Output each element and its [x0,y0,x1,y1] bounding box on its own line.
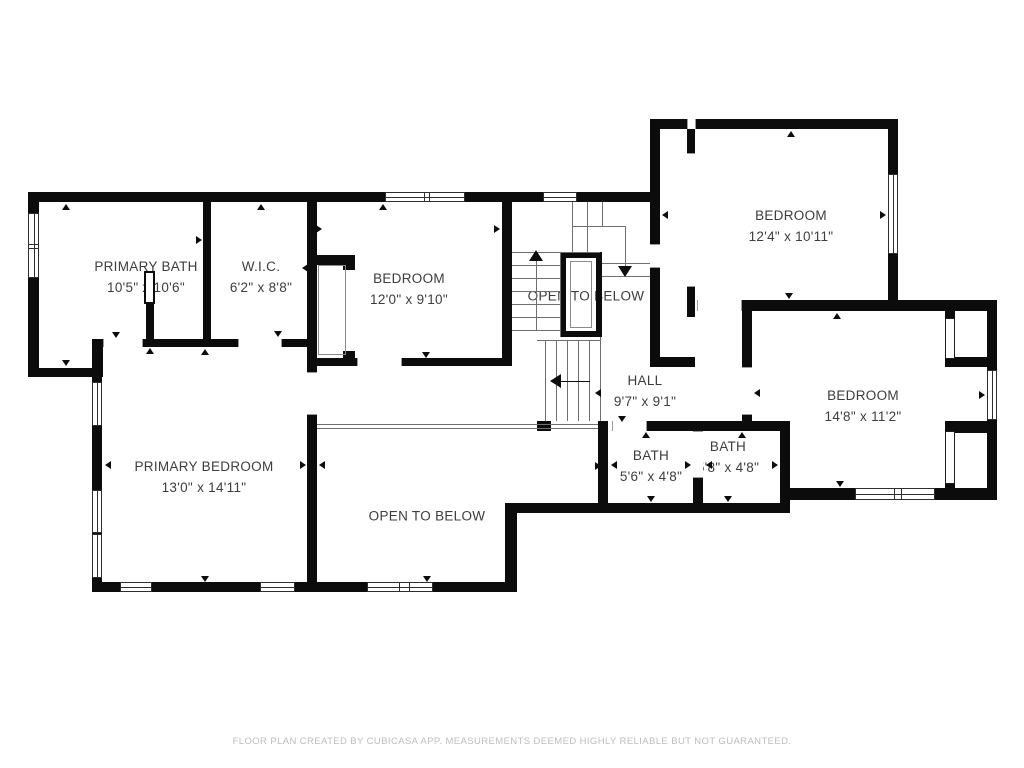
measurement-marker-icon [754,389,760,397]
room-name: BATH [620,445,682,466]
stair-tread-line [537,340,600,341]
room-dimensions: 12'4" x 10'11" [749,226,834,247]
door-opening [687,119,696,129]
measurement-marker-icon [62,204,70,210]
window [855,488,935,500]
wall-segment [307,358,357,366]
window-mullion [29,244,38,245]
window-mullion [29,248,38,249]
door-opening [687,153,695,287]
measurement-marker-icon [423,576,431,582]
glass-panel [945,431,955,484]
wall-segment [505,503,517,592]
measurement-marker-icon [62,360,70,366]
window-pane-line [893,175,894,253]
room-label-bedroom-top-right: BEDROOM 12'4" x 10'11" [749,205,834,247]
measurement-marker-icon [836,481,844,487]
window-mullion [894,489,895,499]
wall-segment [505,503,616,513]
wall-segment [92,582,517,592]
stair-direction-arrow-icon [618,266,632,277]
wall-segment [742,300,997,311]
measurement-marker-icon [785,293,793,299]
room-name: BEDROOM [825,385,902,406]
wall-segment [888,119,898,174]
measurement-marker-icon [706,461,712,469]
window-pane-line [261,587,294,588]
wall-segment [307,192,317,372]
measurement-marker-icon [302,264,308,272]
door-opening [650,244,660,268]
wall-segment [687,300,695,317]
window-pane-line [34,214,35,277]
window-pane-line [856,494,934,495]
wall-segment [742,302,752,367]
measurement-marker-icon [833,313,841,319]
room-name: OPEN TO BELOW [369,506,486,527]
glass-panel [945,318,955,359]
window [888,174,898,254]
measurement-marker-icon [595,389,601,397]
floor-plan-canvas: PRIMARY BATH 10'5" x 10'6" W.I.C. 6'2" x… [0,0,1024,768]
floor-plan-page: PRIMARY BATH 10'5" x 10'6" W.I.C. 6'2" x… [0,0,1024,768]
window [92,534,102,578]
measurement-marker-icon [316,225,322,233]
stair-tread-line [545,340,546,421]
stair-tread-line [512,252,600,253]
room-label-wic: W.I.C. 6'2" x 8'8" [230,256,292,298]
measurement-marker-icon [685,461,691,469]
window-mullion [399,583,400,591]
measurement-marker-icon [422,352,430,358]
wall-segment [203,202,211,347]
door-opening [238,339,282,347]
window [987,370,997,420]
door-opening [697,300,742,311]
measurement-marker-icon [979,391,985,399]
room-dimensions: 13'0" x 14'11" [134,477,273,498]
stair-tread-line [602,202,603,226]
wall-segment [502,192,512,366]
measurement-marker-icon [724,496,732,502]
room-label-bedroom-right: BEDROOM 14'8" x 11'2" [825,385,902,427]
measurement-marker-icon [300,461,306,469]
stair-direction-arrow-icon [550,374,561,388]
window-pane-line [368,587,432,588]
thin-outline [570,261,592,328]
measurement-marker-icon [662,211,668,219]
measurement-marker-icon [146,348,154,354]
window-pane-line [121,587,151,588]
stair-tread-line [602,263,650,264]
window-pane-line [97,535,98,577]
wall-segment [742,415,752,430]
window-pane-line [386,197,464,198]
room-label-bath-right: BATH 5'8" x 4'8" [697,436,759,478]
room-name: BATH [697,436,759,457]
door-opening [742,367,752,415]
window-pane-line [992,371,993,419]
window-mullion [409,583,410,591]
wall-segment [687,129,695,153]
room-label-open-to-below-lower: OPEN TO BELOW [369,506,486,527]
wall-segment [650,119,660,244]
stair-tread-line [600,337,601,421]
measurement-marker-icon [196,236,202,244]
stair-tread-line [551,428,598,429]
room-dimensions: 6'2" x 8'8" [230,277,292,298]
door-opening [357,358,402,366]
measurement-marker-icon [379,204,387,210]
door-opening [307,372,317,415]
measurement-marker-icon [647,496,655,502]
measurement-marker-icon [105,461,111,469]
wall-segment [560,331,602,337]
room-label-primary-bedroom: PRIMARY BEDROOM 13'0" x 14'11" [134,456,273,498]
window [92,490,102,533]
window [260,582,295,592]
room-name: BEDROOM [749,205,834,226]
window [120,582,152,592]
wall-segment [650,268,660,367]
stair-tread-line [551,424,598,425]
room-dimensions: 9'7" x 9'1" [614,391,676,412]
wall-segment [211,339,238,347]
door-opening [612,421,647,431]
room-name: HALL [614,370,676,391]
window [28,213,39,278]
measurement-marker-icon [642,432,650,438]
room-label-bedroom-top: BEDROOM 12'0" x 9'10" [370,268,448,310]
window [543,192,577,202]
wall-segment [696,119,898,129]
wall-segment [650,357,695,367]
window-pane-line [97,383,98,425]
thin-outline [318,265,346,355]
room-name: BEDROOM [370,268,448,289]
measurement-marker-icon [880,211,886,219]
footer-disclaimer: FLOOR PLAN CREATED BY CUBICASA APP. MEAS… [0,736,1024,747]
measurement-marker-icon [611,461,617,469]
measurement-marker-icon [618,416,626,422]
stair-tread-line [572,202,573,252]
window-mullion [901,489,902,499]
wall-segment [143,339,211,347]
measurement-marker-icon [772,461,778,469]
window [385,192,465,202]
stair-tread-line [587,202,588,252]
window-pane-line [97,491,98,532]
wall-segment [650,119,687,129]
measurement-marker-icon [257,204,265,210]
room-dimensions: 14'8" x 11'2" [825,406,902,427]
room-label-hall: HALL 9'7" x 9'1" [614,370,676,412]
stair-tread-line [560,252,561,337]
wall-segment [146,303,154,340]
measurement-marker-icon [595,462,601,470]
measurement-marker-icon [201,349,209,355]
room-label-bath-left: BATH 5'6" x 4'8" [620,445,682,487]
measurement-marker-icon [274,331,282,337]
wall-segment [596,252,602,337]
measurement-marker-icon [494,225,500,233]
window [367,582,433,592]
room-dimensions: 5'6" x 4'8" [620,466,682,487]
wall-segment [92,339,103,371]
wall-segment [647,421,790,431]
window-pane-line [544,197,576,198]
stair-direction-arrow-icon [529,250,543,261]
door-opening [693,431,703,478]
stair-tread-line [536,260,537,331]
window-mullion [424,193,425,201]
door-opening [103,339,143,347]
measurement-marker-icon [787,131,795,137]
stair-tread-line [625,226,626,266]
measurement-marker-icon [201,576,209,582]
window [92,382,102,426]
wall-segment [402,358,510,366]
wall-segment [598,503,790,513]
room-name: W.I.C. [230,256,292,277]
room-name: PRIMARY BEDROOM [134,456,273,477]
room-dimensions: 12'0" x 9'10" [370,289,448,310]
door-leaf [144,271,155,304]
window-mullion [429,193,430,201]
measurement-marker-icon [319,461,325,469]
stair-tread-line [572,226,625,227]
measurement-marker-icon [112,332,120,338]
stair-arrow-stem [560,381,590,382]
wall-segment [307,415,317,592]
wall-segment [537,421,551,431]
measurement-marker-icon [738,432,746,438]
